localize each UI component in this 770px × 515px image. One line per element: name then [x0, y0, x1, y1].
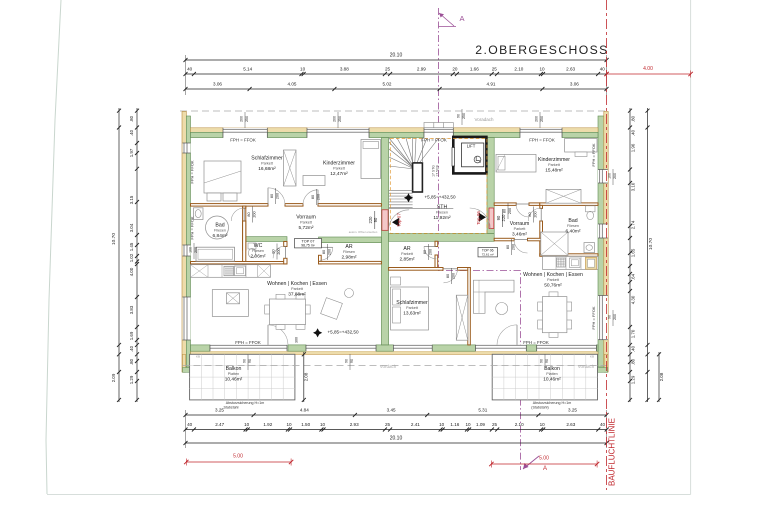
svg-text:2.41: 2.41	[411, 422, 420, 427]
svg-text:Parkett: Parkett	[261, 162, 273, 166]
svg-text:90: 90	[545, 359, 549, 363]
svg-text:3.15: 3.15	[129, 195, 134, 204]
svg-text:1.97: 1.97	[129, 148, 134, 157]
svg-text:4.00: 4.00	[643, 66, 653, 72]
svg-text:1.02: 1.02	[129, 253, 134, 262]
svg-text:2.10: 2.10	[514, 67, 523, 72]
svg-text:Parkett: Parkett	[401, 252, 413, 256]
svg-text:5,72m²: 5,72m²	[299, 225, 314, 231]
svg-text:25: 25	[385, 67, 391, 72]
svg-text:10: 10	[300, 67, 306, 72]
svg-text:Platten: Platten	[228, 372, 239, 376]
svg-text:200: 200	[327, 249, 331, 255]
svg-text:10: 10	[244, 422, 250, 427]
svg-text:4.05: 4.05	[288, 82, 297, 87]
svg-text:220: 220	[368, 216, 373, 224]
svg-text:Fliesen: Fliesen	[214, 229, 226, 233]
svg-text:250: 250	[338, 116, 342, 122]
svg-text:200: 200	[333, 116, 337, 122]
svg-text:Top 07: Top 07	[397, 213, 402, 227]
svg-text:1.70: 1.70	[631, 329, 636, 338]
svg-text:FPH = FFOK: FPH = FFOK	[529, 138, 555, 143]
svg-text:200: 200	[316, 194, 320, 200]
svg-text:Fliesen: Fliesen	[343, 250, 355, 254]
svg-text:4.91: 4.91	[487, 82, 496, 87]
svg-text:FPH = FFOK: FPH = FFOK	[190, 216, 195, 240]
svg-text:Parkett: Parkett	[406, 306, 418, 310]
svg-text:6,84m²: 6,84m²	[213, 233, 228, 239]
svg-text:2.08: 2.08	[304, 372, 309, 381]
svg-text:1.29: 1.29	[129, 375, 134, 384]
svg-text:2.99: 2.99	[417, 67, 426, 72]
svg-text:1.16: 1.16	[450, 422, 459, 427]
svg-text:10: 10	[539, 67, 545, 72]
svg-text:3.88: 3.88	[340, 67, 349, 72]
svg-text:25: 25	[385, 422, 391, 427]
svg-text:1.09: 1.09	[476, 422, 485, 427]
svg-text:72,61 m²: 72,61 m²	[482, 253, 494, 257]
svg-text:1.65: 1.65	[631, 248, 636, 257]
svg-text:Schlafzimmer: Schlafzimmer	[396, 300, 428, 306]
svg-text:90: 90	[350, 359, 354, 363]
svg-text:6,40m²: 6,40m²	[566, 229, 581, 235]
svg-text:Parkett: Parkett	[547, 278, 559, 282]
svg-text:10: 10	[320, 422, 326, 427]
svg-text:.80: .80	[631, 115, 636, 122]
svg-text:Absturzsicherung H=1m: Absturzsicherung H=1m	[533, 401, 571, 405]
svg-text:A: A	[459, 14, 464, 23]
svg-text:FPH = FFOK: FPH = FFOK	[421, 138, 447, 143]
svg-text:80: 80	[311, 195, 315, 199]
svg-text:.40: .40	[631, 345, 636, 352]
svg-text:200: 200	[533, 211, 537, 217]
svg-text:(Stabstahl): (Stabstahl)	[531, 406, 548, 410]
svg-text:10: 10	[465, 422, 471, 427]
svg-text:2.93: 2.93	[350, 422, 359, 427]
svg-text:Top 06: Top 06	[476, 211, 481, 225]
svg-text:AR: AR	[345, 244, 352, 250]
svg-text:.40: .40	[129, 345, 134, 352]
svg-text:Parkett: Parkett	[291, 287, 303, 291]
svg-text:Platten: Platten	[546, 372, 557, 376]
svg-text:5.00: 5.00	[233, 454, 243, 460]
svg-text:3,46m²: 3,46m²	[512, 232, 527, 238]
svg-text:2.63: 2.63	[566, 67, 575, 72]
svg-text:2.OBERGESCHOSS: 2.OBERGESCHOSS	[475, 43, 608, 57]
svg-text:BAUFLUCHTLINIE: BAUFLUCHTLINIE	[608, 418, 617, 486]
svg-text:Fliesen: Fliesen	[567, 224, 579, 228]
svg-text:1.66: 1.66	[470, 67, 479, 72]
svg-text:Absturzsicherung H=1m: Absturzsicherung H=1m	[226, 401, 264, 405]
svg-text:+5,85=+432,50: +5,85=+432,50	[327, 330, 358, 335]
svg-text:FPH = FFOK: FPH = FFOK	[523, 340, 549, 345]
svg-text:Parkett: Parkett	[514, 227, 526, 231]
svg-text:200: 200	[613, 173, 617, 179]
svg-text:STH: STH	[437, 205, 448, 211]
svg-text:Kinderzimmer: Kinderzimmer	[323, 161, 355, 167]
svg-text:Balkon: Balkon	[544, 366, 560, 372]
svg-text:1.45: 1.45	[129, 242, 134, 251]
svg-text:2,85m²: 2,85m²	[400, 257, 415, 263]
svg-text:3.45: 3.45	[387, 408, 396, 413]
svg-text:250: 250	[540, 116, 544, 122]
svg-text:3.04: 3.04	[129, 223, 134, 232]
svg-text:FPH = FFOK: FPH = FFOK	[190, 160, 195, 184]
svg-text:200: 200	[451, 273, 455, 279]
svg-text:90: 90	[373, 217, 378, 222]
svg-text:200: 200	[275, 193, 279, 199]
svg-text:4.30: 4.30	[631, 295, 636, 304]
svg-text:80: 80	[272, 249, 276, 253]
svg-text:200: 200	[240, 116, 244, 122]
svg-text:5.31: 5.31	[478, 408, 487, 413]
svg-text:1.69: 1.69	[129, 331, 134, 340]
svg-text:5.00: 5.00	[539, 456, 549, 462]
svg-text:200: 200	[511, 244, 515, 250]
svg-text:FPH = FFOK: FPH = FFOK	[235, 340, 261, 345]
svg-text:Vorraum: Vorraum	[296, 215, 316, 221]
svg-text:3.06: 3.06	[570, 82, 579, 87]
svg-text:90: 90	[248, 359, 252, 363]
svg-text:+5,85=+432,50: +5,85=+432,50	[424, 195, 455, 200]
svg-text:15,48m²: 15,48m²	[545, 168, 563, 174]
svg-text:90: 90	[540, 359, 544, 363]
svg-text:80: 80	[423, 250, 427, 254]
svg-text:200: 200	[194, 247, 198, 253]
svg-text:FPH = FFOK: FPH = FFOK	[591, 143, 596, 167]
svg-text:17,5/28: 17,5/28	[436, 165, 440, 176]
svg-text:80: 80	[322, 250, 326, 254]
svg-text:80: 80	[503, 209, 507, 213]
svg-text:10: 10	[439, 422, 445, 427]
svg-text:98,75 m²: 98,75 m²	[301, 244, 315, 248]
svg-text:2.08: 2.08	[659, 372, 664, 381]
svg-text:10.70: 10.70	[111, 233, 117, 245]
svg-text:200: 200	[252, 211, 256, 217]
svg-text:Wohnen | Kochen | Essen: Wohnen | Kochen | Essen	[523, 272, 583, 278]
svg-text:Bad: Bad	[568, 218, 577, 224]
svg-text:80: 80	[270, 194, 274, 198]
svg-text:Bad: Bad	[215, 223, 224, 229]
svg-text:3.83: 3.83	[129, 305, 134, 314]
svg-text:200: 200	[535, 116, 539, 122]
svg-text:A: A	[543, 466, 547, 472]
svg-text:KB: KB	[590, 355, 594, 359]
svg-text:AR: AR	[403, 246, 410, 252]
svg-text:90: 90	[345, 359, 349, 363]
svg-text:1.29: 1.29	[631, 375, 636, 384]
svg-text:20.10: 20.10	[390, 53, 403, 59]
svg-text:Wohnen | Kochen | Essen: Wohnen | Kochen | Essen	[267, 281, 327, 287]
svg-text:3.25: 3.25	[568, 408, 577, 413]
svg-text:20: 20	[452, 67, 458, 72]
svg-text:FPH = FFOK: FPH = FFOK	[230, 138, 256, 143]
svg-text:16,68m²: 16,68m²	[258, 166, 276, 172]
svg-text:80: 80	[446, 274, 450, 278]
svg-text:10: 10	[540, 422, 546, 427]
svg-text:.40: .40	[129, 129, 134, 136]
svg-text:300: 300	[295, 337, 299, 343]
svg-text:1.50: 1.50	[301, 422, 310, 427]
svg-text:80: 80	[247, 212, 251, 216]
svg-text:3.25: 3.25	[215, 408, 224, 413]
svg-text:Fliesen: Fliesen	[252, 249, 264, 253]
svg-text:10,46m²: 10,46m²	[543, 377, 561, 383]
svg-text:25: 25	[492, 67, 498, 72]
svg-text:37,88m²: 37,88m²	[288, 292, 306, 298]
svg-text:100: 100	[189, 247, 193, 253]
svg-text:Parkett: Parkett	[300, 221, 312, 225]
svg-text:40: 40	[187, 422, 193, 427]
svg-text:Parkett: Parkett	[333, 167, 345, 171]
svg-text:Kinderzimmer: Kinderzimmer	[538, 157, 570, 163]
svg-text:100: 100	[608, 173, 612, 179]
svg-text:WC: WC	[254, 243, 263, 249]
svg-text:80: 80	[506, 245, 510, 249]
svg-text:200: 200	[508, 208, 512, 214]
svg-text:Stabstahl: Stabstahl	[224, 406, 239, 410]
svg-text:4.00: 4.00	[129, 267, 134, 276]
svg-text:40: 40	[187, 67, 193, 72]
svg-text:4.84: 4.84	[300, 408, 309, 413]
svg-text:200: 200	[613, 314, 617, 320]
svg-text:50,76m²: 50,76m²	[544, 283, 562, 289]
svg-text:2.63: 2.63	[566, 422, 575, 427]
svg-text:80: 80	[528, 212, 532, 216]
svg-text:12,47m²: 12,47m²	[330, 171, 348, 177]
svg-text:40: 40	[600, 422, 606, 427]
svg-text:5.14: 5.14	[243, 67, 252, 72]
svg-text:90: 90	[457, 114, 461, 118]
svg-text:2.47: 2.47	[215, 422, 224, 427]
svg-text:KB: KB	[196, 355, 200, 359]
svg-text:.64: .64	[631, 273, 636, 280]
svg-text:2,98m²: 2,98m²	[342, 255, 357, 261]
svg-text:Vorraum: Vorraum	[510, 221, 530, 227]
svg-text:200: 200	[428, 249, 432, 255]
svg-text:1.96: 1.96	[631, 143, 636, 152]
svg-text:LIFT: LIFT	[467, 144, 476, 149]
svg-text:.80: .80	[129, 358, 134, 365]
svg-text:2.09: 2.09	[111, 373, 116, 382]
svg-text:.80: .80	[129, 115, 134, 122]
svg-text:250: 250	[462, 113, 466, 119]
svg-text:11,92m²: 11,92m²	[433, 215, 451, 221]
svg-text:40: 40	[600, 67, 606, 72]
svg-text:2.10: 2.10	[515, 422, 524, 427]
svg-text:220: 220	[501, 214, 506, 222]
svg-text:Parkett: Parkett	[548, 163, 560, 167]
svg-text:2,06m²: 2,06m²	[251, 254, 266, 260]
svg-text:Vordach: Vordach	[578, 364, 595, 369]
svg-text:13,63m²: 13,63m²	[403, 311, 421, 317]
svg-text:90: 90	[608, 315, 612, 319]
svg-text:1.92: 1.92	[263, 422, 272, 427]
svg-text:2.74: 2.74	[631, 220, 636, 229]
svg-text:FPH = FFOK: FPH = FFOK	[591, 306, 596, 330]
svg-text:autom. Offner ersetzen: autom. Offner ersetzen	[349, 230, 378, 234]
svg-text:Vordach: Vordach	[380, 364, 397, 369]
svg-text:3.10: 3.10	[631, 182, 636, 191]
svg-text:10.70: 10.70	[648, 238, 654, 250]
svg-text:Fliesen: Fliesen	[436, 211, 448, 215]
svg-text:10: 10	[286, 422, 292, 427]
svg-text:250: 250	[245, 116, 249, 122]
svg-text:5.02: 5.02	[383, 82, 392, 87]
svg-text:.40: .40	[631, 129, 636, 136]
svg-text:.80: .80	[631, 358, 636, 365]
svg-text:20.10: 20.10	[390, 436, 403, 442]
svg-text:Schlafzimmer: Schlafzimmer	[251, 156, 283, 162]
svg-text:25: 25	[492, 422, 498, 427]
svg-text:90: 90	[243, 359, 247, 363]
svg-text:Balkon: Balkon	[226, 366, 242, 372]
svg-text:3.06: 3.06	[213, 82, 222, 87]
svg-text:Voradach: Voradach	[474, 117, 494, 122]
svg-text:200: 200	[277, 248, 281, 254]
svg-text:10,46m²: 10,46m²	[225, 377, 243, 383]
